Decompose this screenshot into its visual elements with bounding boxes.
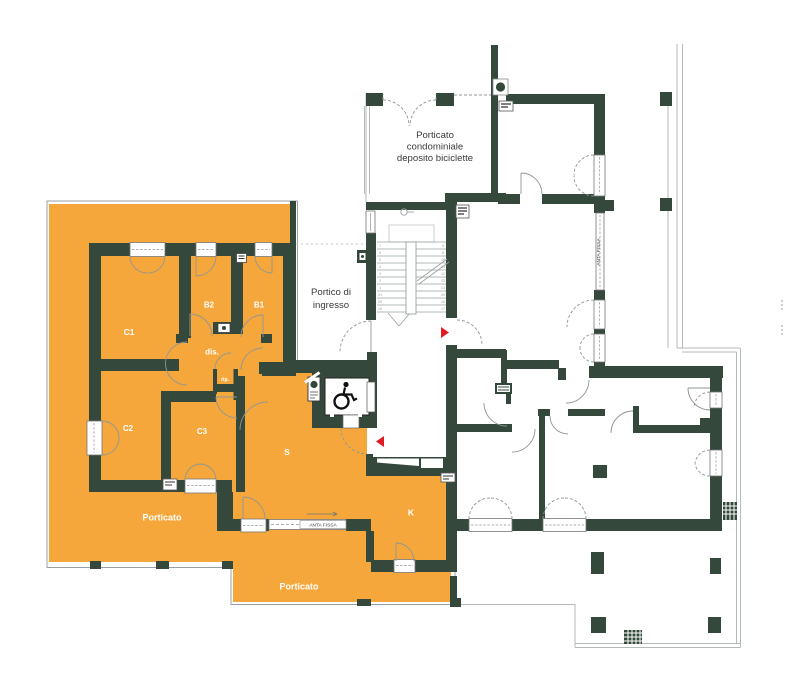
svg-text:Porticato: Porticato (279, 582, 319, 592)
svg-text:11: 11 (441, 266, 445, 270)
svg-text:S: S (284, 447, 290, 457)
svg-text:1: 1 (379, 287, 381, 291)
svg-text:C3: C3 (197, 427, 208, 436)
svg-text:5: 5 (379, 259, 381, 263)
svg-text:2: 2 (379, 280, 381, 284)
svg-text:10: 10 (441, 259, 445, 263)
svg-text:6: 6 (379, 252, 381, 256)
svg-text:8: 8 (442, 245, 444, 249)
svg-text:C2: C2 (123, 424, 134, 433)
svg-text:16: 16 (441, 301, 445, 305)
svg-text:13: 13 (441, 280, 445, 284)
svg-text:21: 21 (378, 294, 382, 298)
svg-text:19: 19 (378, 308, 382, 312)
svg-text:Porticato: Porticato (416, 130, 454, 141)
svg-text:dis.: dis. (205, 348, 219, 357)
svg-text:condominiale: condominiale (407, 142, 464, 153)
svg-text:B1: B1 (254, 301, 265, 310)
svg-text:17: 17 (441, 308, 445, 312)
svg-text:3: 3 (379, 273, 381, 277)
svg-text:14: 14 (441, 287, 445, 291)
svg-text:ANTA FISSA: ANTA FISSA (309, 523, 337, 529)
svg-text:C1: C1 (124, 327, 135, 337)
svg-text:20: 20 (378, 301, 382, 305)
svg-text:4: 4 (379, 266, 381, 270)
svg-text:rip.: rip. (221, 377, 229, 383)
svg-text:K: K (408, 508, 415, 518)
svg-text:9: 9 (442, 252, 444, 256)
svg-text:deposito biciclette: deposito biciclette (397, 153, 473, 164)
svg-text:B2: B2 (204, 301, 215, 310)
svg-text:15: 15 (441, 294, 445, 298)
svg-text:ANTA FISSA: ANTA FISSA (596, 238, 602, 266)
svg-text:12: 12 (441, 273, 445, 277)
svg-text:Portico di: Portico di (311, 287, 351, 298)
svg-text:Porticato: Porticato (142, 513, 182, 523)
svg-text:7: 7 (379, 245, 381, 249)
svg-text:ingresso: ingresso (313, 300, 349, 311)
